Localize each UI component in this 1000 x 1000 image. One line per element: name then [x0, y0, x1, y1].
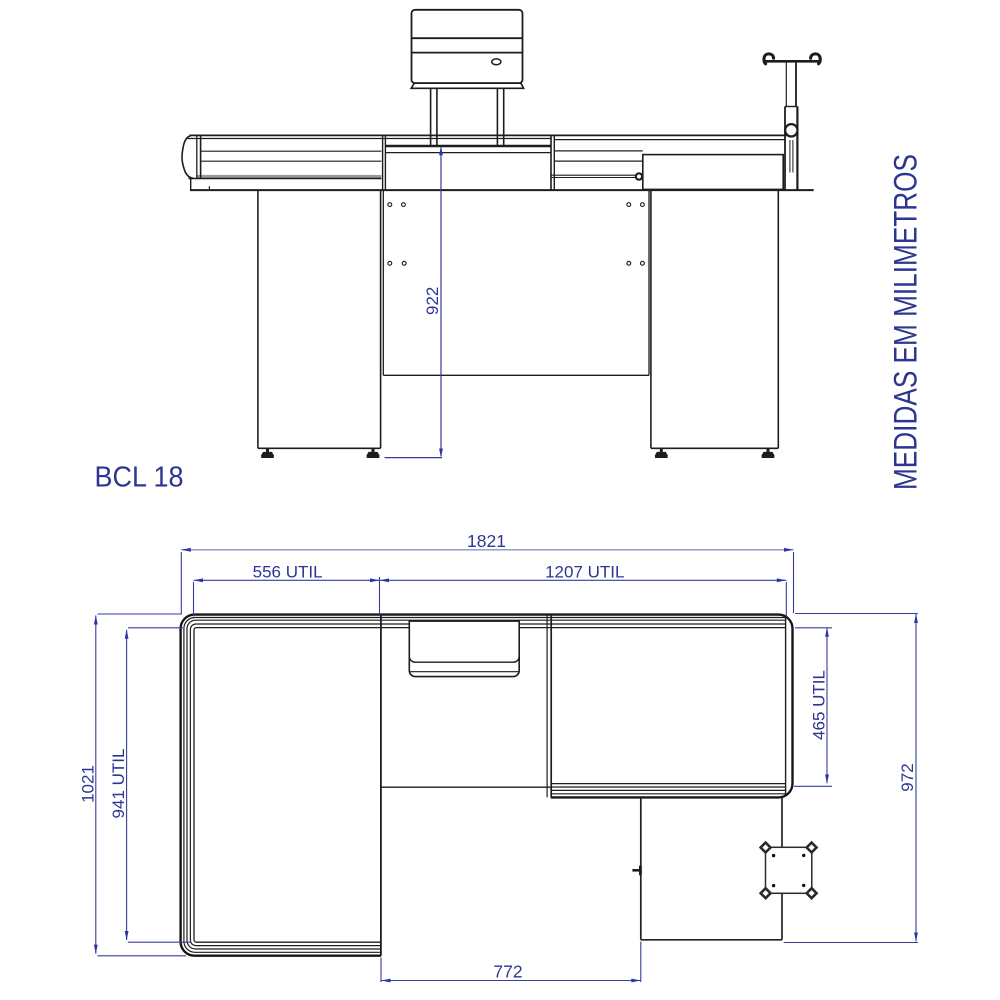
svg-text:772: 772 [493, 962, 522, 982]
svg-text:1821: 1821 [467, 531, 506, 551]
svg-text:465 UTIL: 465 UTIL [810, 670, 829, 740]
svg-text:922: 922 [423, 287, 442, 315]
svg-text:1207 UTIL: 1207 UTIL [545, 562, 624, 581]
svg-text:1021: 1021 [78, 765, 97, 803]
svg-text:972: 972 [898, 763, 917, 791]
svg-text:MEDIDAS EM MILIMETROS: MEDIDAS EM MILIMETROS [888, 154, 924, 490]
svg-text:BCL 18: BCL 18 [95, 462, 184, 494]
svg-text:556 UTIL: 556 UTIL [253, 562, 323, 581]
svg-text:941 UTIL: 941 UTIL [109, 749, 128, 819]
